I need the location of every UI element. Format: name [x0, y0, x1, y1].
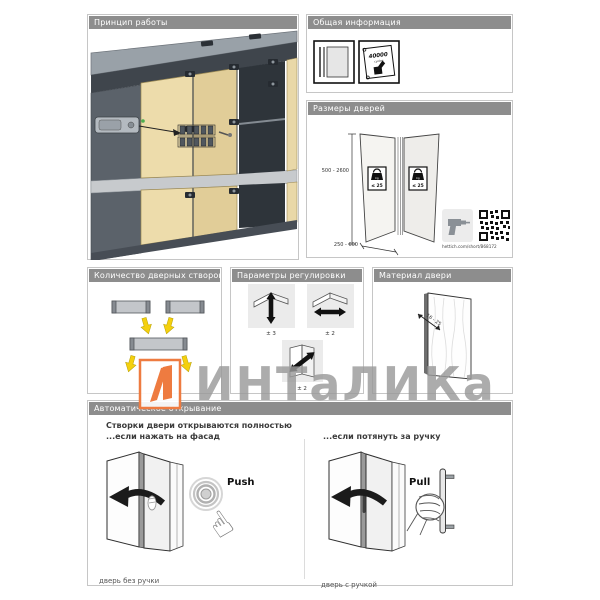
cabinet-illustration — [89, 29, 299, 260]
door-material-diagram: 16 - 25 — [374, 282, 513, 394]
horizontal-adjust-label: ± 2 — [325, 331, 335, 337]
catalog-icon — [314, 41, 354, 83]
push-label: Push — [227, 477, 255, 488]
pull-subheading: ...если потянуть за ручку — [323, 432, 440, 441]
pointing-hand-icon: ☝ — [201, 503, 241, 548]
panel-auto-opening: Автоматическое открывание Створки двери … — [87, 400, 513, 586]
leaf-count-diagram — [89, 282, 222, 394]
panel-principle: Принцип работы — [87, 14, 299, 260]
qr-code — [478, 209, 511, 242]
panel-door-dimensions: Размеры дверей kg ≤ 25 kg ≤ 25 — [306, 100, 513, 258]
weight-icon: kg ≤ 25 — [368, 167, 386, 190]
panel-leaf-count: Количество дверных створок — [87, 267, 222, 394]
weight-icon: kg ≤ 25 — [409, 167, 427, 190]
section-header-door-dimensions: Размеры дверей — [308, 102, 511, 115]
section-header-general-info: Общая информация — [308, 16, 511, 29]
general-info-icons: 40000 cycles — [308, 29, 513, 93]
grip-hand-icon — [407, 494, 444, 535]
column-divider — [304, 439, 305, 579]
drive-unit-icon — [95, 117, 145, 133]
qr-link-label: hettich.com/short/B68172 — [442, 244, 497, 249]
svg-text:≤ 25: ≤ 25 — [371, 183, 383, 189]
section-header-auto-opening: Автоматическое открывание — [89, 402, 511, 415]
diagonal-adjust-label: ± 2 — [297, 386, 307, 392]
door-hand-icon — [148, 496, 156, 510]
section-header-door-material: Материал двери — [374, 269, 511, 282]
svg-text:≤ 25: ≤ 25 — [412, 183, 424, 189]
adjustment-diagram: ± 3 ± 2 ± 2 — [232, 282, 364, 394]
section-header-principle: Принцип работы — [89, 16, 297, 29]
panel-door-material: Материал двери 16 - 25 — [372, 267, 513, 394]
handle-caption: дверь с ручкой — [321, 581, 377, 589]
push-subheading: ...если нажать на фасад — [106, 432, 220, 441]
height-range-label: 500 - 2600 — [322, 168, 349, 174]
svg-text:kg: kg — [375, 176, 379, 180]
section-header-leaf-count: Количество дверных створок — [89, 269, 220, 282]
vertical-adjust-label: ± 3 — [266, 331, 276, 337]
panel-general-info: Общая информация 40000 cycles — [306, 14, 513, 93]
pull-label: Pull — [409, 477, 430, 488]
panel-adjustment: Параметры регулировки ± 3 ± 2 ± 2 — [230, 267, 364, 394]
section-header-adjustment: Параметры регулировки — [232, 269, 362, 282]
door-dimensions-diagram: kg ≤ 25 kg ≤ 25 500 - 2600 250 - 600 — [308, 115, 513, 258]
auto-opening-heading: Створки двери открываются полностью — [106, 421, 292, 430]
push-illustration: ☝ Push — [95, 445, 295, 561]
pull-illustration: Pull — [317, 445, 517, 561]
svg-text:kg: kg — [416, 176, 420, 180]
width-range-label: 250 - 600 — [334, 242, 358, 248]
no-handle-caption: дверь без ручки — [99, 577, 159, 585]
cycles-certificate-icon: 40000 cycles — [359, 41, 399, 83]
